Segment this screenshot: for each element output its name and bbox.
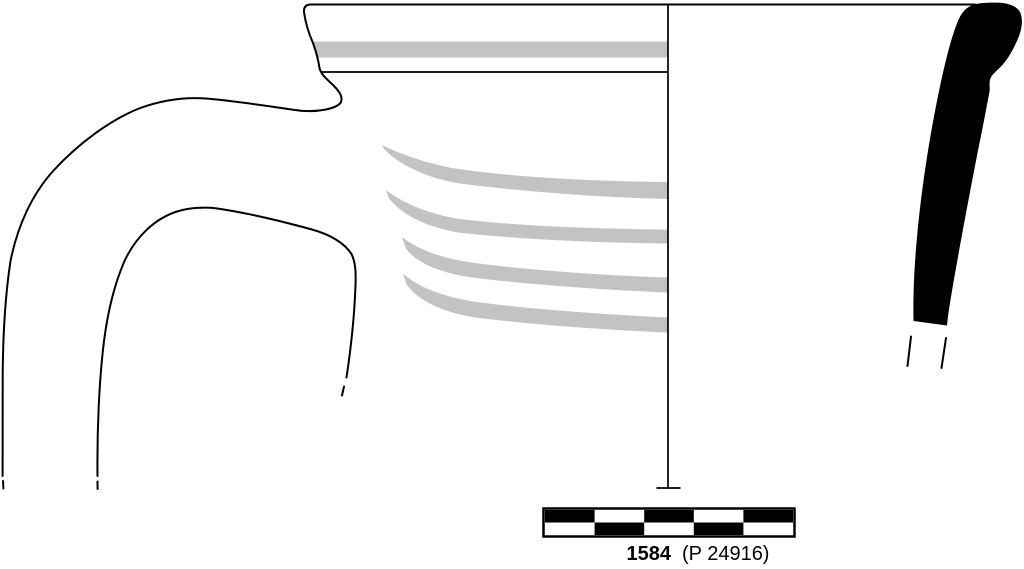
scale-bar: [544, 509, 795, 537]
scale-bar-cell: [595, 523, 645, 536]
body-band-2: [386, 190, 668, 244]
pottery-drawing: [0, 0, 1024, 569]
figure-canvas: 1584(P 24916): [0, 0, 1024, 569]
section-left-break-tick: [908, 337, 912, 367]
section-profile: [913, 3, 1022, 326]
rim-and-handle-outer-outline: [3, 5, 975, 477]
scale-bar-cell: [545, 510, 595, 523]
body-band-3: [402, 237, 668, 293]
scale-bar-cell: [694, 523, 744, 536]
section-right-break-tick: [942, 338, 947, 368]
rim-gray-band: [314, 42, 669, 58]
inventory-number: (P 24916): [682, 543, 769, 565]
catalog-number: 1584: [627, 543, 672, 565]
inner-line-right-break-tick: [342, 387, 344, 396]
figure-caption: 1584(P 24916): [537, 543, 859, 566]
handle-inner-outline: [97, 208, 355, 476]
scale-bar-cell: [644, 510, 694, 523]
body-band-1: [382, 145, 668, 199]
scale-bar-cell: [743, 510, 793, 523]
